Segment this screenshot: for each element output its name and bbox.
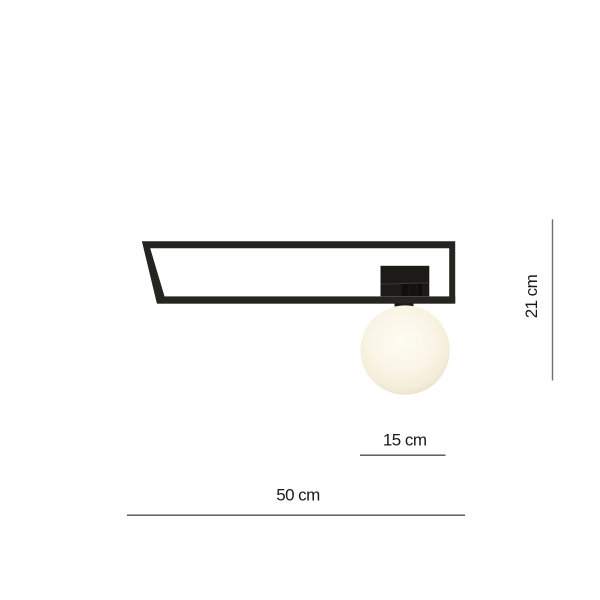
svg-text:15 cm: 15 cm [383,430,427,449]
svg-text:21 cm: 21 cm [522,274,541,318]
svg-text:50 cm: 50 cm [276,486,320,505]
